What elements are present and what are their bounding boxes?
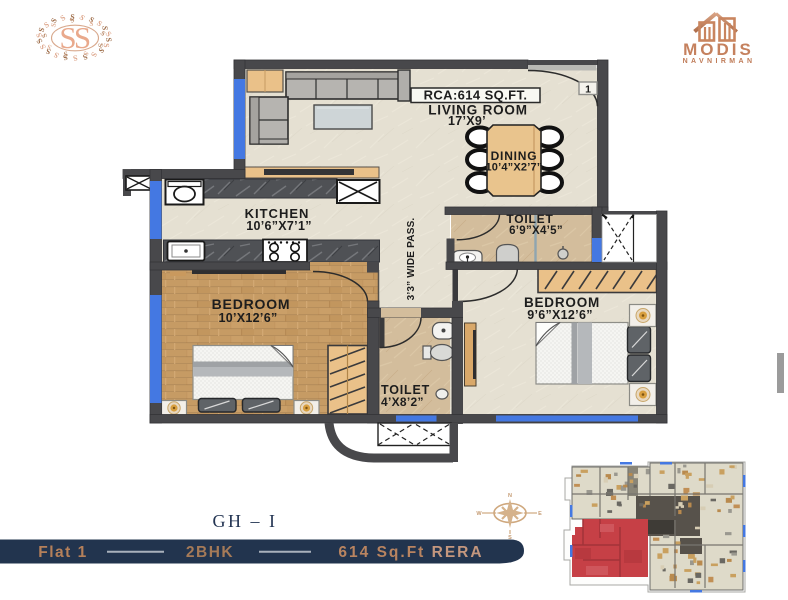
svg-text:E: E [538, 511, 542, 517]
svg-text:4’X8’2”: 4’X8’2” [381, 395, 424, 409]
svg-text:N: N [508, 493, 512, 499]
svg-text:10’4”X2’7”: 10’4”X2’7” [485, 162, 542, 174]
svg-text:10’X12’6”: 10’X12’6” [219, 311, 278, 325]
svg-text:MODIS: MODIS [683, 40, 754, 59]
svg-text:W: W [476, 511, 482, 517]
svg-text:Flat 1: Flat 1 [38, 544, 87, 561]
svg-text:6’9”X4’5”: 6’9”X4’5” [509, 225, 563, 237]
svg-text:10’6”X7’1”: 10’6”X7’1” [246, 219, 312, 233]
svg-text:3’3” WIDE PASS.: 3’3” WIDE PASS. [406, 218, 417, 301]
svg-text:GH – I: GH – I [213, 511, 278, 531]
svg-text:17’X9’: 17’X9’ [448, 114, 486, 128]
svg-text:RCA:614 SQ.FT.: RCA:614 SQ.FT. [424, 88, 528, 103]
svg-text:S: S [74, 20, 91, 55]
svg-text:614 Sq.Ft RERA: 614 Sq.Ft RERA [338, 544, 483, 561]
svg-text:NAVNIRMAN: NAVNIRMAN [683, 58, 756, 65]
svg-text:BEDROOM: BEDROOM [212, 296, 291, 312]
svg-text:1: 1 [585, 83, 591, 95]
svg-text:S: S [96, 43, 104, 48]
svg-text:9’6”X12’6”: 9’6”X12’6” [527, 308, 593, 322]
svg-text:S: S [104, 37, 113, 42]
svg-text:2BHK: 2BHK [186, 544, 234, 561]
